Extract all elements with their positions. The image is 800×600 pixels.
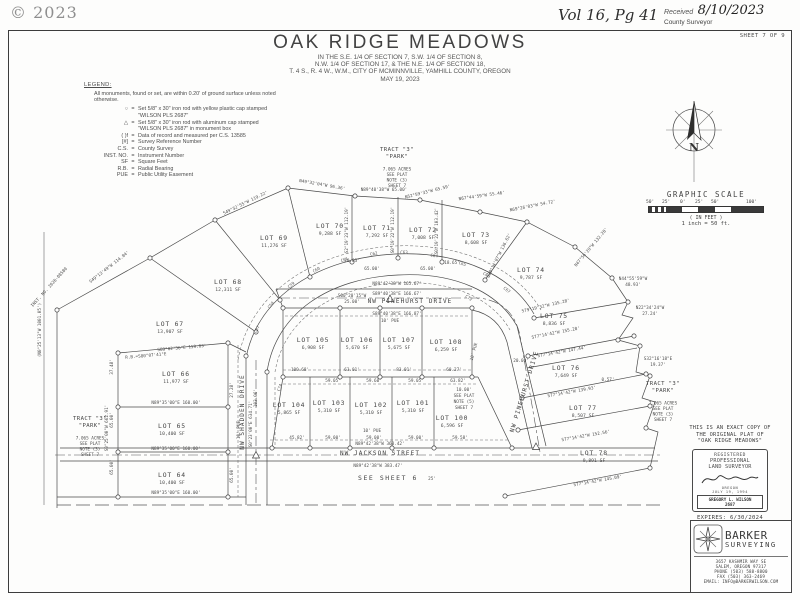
cert-line1: THIS IS AN EXACT COPY OF xyxy=(664,425,796,432)
lot-area-label: 5,675 SF xyxy=(388,345,411,351)
bearing-distance-label: 59.00' xyxy=(366,435,382,441)
tract-label: SEE PLAT xyxy=(387,172,408,178)
bearing-distance-label: 63.01' xyxy=(344,367,360,373)
bearing-distance-label: 18.65' xyxy=(444,260,460,266)
lot-number-label: LOT 70 xyxy=(316,222,344,230)
bearing-distance-label: 100.68' xyxy=(291,367,309,373)
lot-number-label: LOT 65 xyxy=(158,422,186,430)
scale-bar xyxy=(648,206,764,213)
curve-number-label: C72 xyxy=(464,294,473,303)
bearing-distance-label: S89°40'38"E 166.87' xyxy=(372,311,421,317)
bearing-distance-label: S77°14'42"W 155.28' xyxy=(531,325,580,340)
bearing-distance-label: S32°16'18"E xyxy=(644,356,673,362)
lot-area-label: 9,787 SF xyxy=(520,275,543,281)
bearing-distance-label: 25.00' xyxy=(344,299,360,305)
bearing-distance-label: S89°40'38"E 166.67' xyxy=(372,291,421,297)
bearing-distance-label: 65.00' xyxy=(420,266,436,272)
bearing-distance-label: SEE PLAT xyxy=(454,393,475,399)
lot-area-label: 10,400 SF xyxy=(159,480,185,486)
lot-number-label: LOT 69 xyxy=(260,234,288,242)
lot-area-label: 6,259 SF xyxy=(435,347,458,353)
lot-number-label: LOT 108 xyxy=(430,338,463,346)
lot-number-label: LOT 77 xyxy=(569,404,597,412)
lot-area-label: 12,311 SF xyxy=(215,287,241,293)
firm-compass-logo xyxy=(693,524,723,554)
lot-number-label: LOT 68 xyxy=(214,278,242,286)
cert-line3: "OAK RIDGE MEADOWS" xyxy=(664,438,796,445)
curve-number-label: C67 xyxy=(502,286,511,295)
bearing-distance-label: 45.82' xyxy=(289,435,305,441)
lot-area-label: 5,310 SF xyxy=(318,408,341,414)
lot-area-label: 7,008 SF xyxy=(412,235,435,241)
lot-number-label: LOT 106 xyxy=(341,336,374,344)
tract-label: "PARK" xyxy=(79,423,102,429)
bearing-distance-label: N89°42'38"W 165.67' xyxy=(372,281,421,287)
bearing-distance-label: 10' PUE xyxy=(381,318,400,324)
firm-header: BARKER SURVEYING xyxy=(691,521,791,555)
lot-number-label: LOT 72 xyxy=(409,226,437,234)
certification-block: THIS IS AN EXACT COPY OF THE ORIGINAL PL… xyxy=(664,425,796,521)
tract-label: TRACT "3" xyxy=(380,147,414,153)
lot-area-label: 6,596 SF xyxy=(441,423,464,429)
graphic-scale: GRAPHIC SCALE 50' 25' 0' 25' 50' 100' ( … xyxy=(646,190,766,227)
plat-sheet: © 2023 Vol 16, Pg 41 Received 8/10/2023 … xyxy=(0,0,800,600)
curve-number-label: C58 xyxy=(267,300,276,309)
bearing-distance-label: 10' PUE xyxy=(236,421,242,440)
scale-tick: 100' xyxy=(746,200,757,205)
bearing-distance-label: 59.60' xyxy=(366,378,382,384)
curve-number-label: C64 xyxy=(430,253,439,259)
bearing-distance-label: 59.58' xyxy=(452,435,468,441)
bearing-distance-label: N89°35'00"E 160.00' xyxy=(151,490,200,496)
bearing-distance-label: R.B.=S80°07'41"E xyxy=(125,351,167,361)
curve-number-label: C57 xyxy=(253,324,261,333)
firm-name: BARKER xyxy=(725,531,777,541)
tract-label: NOTE (3) xyxy=(80,447,101,453)
scale-tick: 25' xyxy=(662,200,670,205)
tract-label: NOTE (3) xyxy=(653,412,674,418)
bearing-distance-label: 103.06' xyxy=(253,389,259,407)
bearing-distance-label: 37.48' xyxy=(109,359,115,375)
curve-number-label: C74 xyxy=(276,383,283,392)
north-arrow: N xyxy=(666,101,722,182)
bearing-distance-label: N22°34'24"W xyxy=(636,305,665,311)
stamp-date: JULY 19, 1994 xyxy=(695,490,765,494)
bearing-distance-label: S49°13'49"W 114.84' xyxy=(88,250,130,285)
lot-number-label: LOT 78 xyxy=(580,449,608,457)
bearing-distance-label: S77°14'42"W 147.44' xyxy=(537,345,586,359)
tract-label: 7.065 ACRES xyxy=(383,167,412,173)
bearing-distance-label: 10' PUE xyxy=(363,428,382,434)
street-name-label: NW JACKSON STREET xyxy=(340,450,420,457)
scale-tick-labels: 50' 25' 0' 25' 50' 100' xyxy=(646,199,766,206)
graphic-scale-title: GRAPHIC SCALE xyxy=(646,190,766,199)
bearing-distance-label: N89°35'00"E 160.00' xyxy=(151,446,200,452)
bearing-distance-label: N69°26'03"W 54.72' xyxy=(509,199,556,214)
lot-area-label: 11,977 SF xyxy=(163,379,189,385)
surveyor-stamp: REGISTERED PROFESSIONAL LAND SURVEYOR OR… xyxy=(692,449,768,512)
bearing-distance-label: N67°44'59"W 55.46' xyxy=(458,190,505,202)
bearing-distance-label: 63.82' xyxy=(450,378,466,384)
bearing-distance-label: 83.01' xyxy=(396,367,412,373)
bearing-distance-label: 20.00' xyxy=(513,358,529,364)
bearing-distance-label: 25' xyxy=(428,476,436,482)
lot-number-label: LOT 67 xyxy=(156,320,184,328)
tract-label: SHEET 7 xyxy=(654,417,673,423)
scale-ratio-note: 1 inch = 50 ft. xyxy=(646,221,766,227)
north-letter: N xyxy=(689,141,699,154)
lot-number-label: LOT 73 xyxy=(462,231,490,239)
bearing-distance-label: 59.00' xyxy=(325,435,341,441)
bearing-distance-label: 65.00' xyxy=(109,459,115,475)
lot-number-label: LOT 102 xyxy=(355,401,388,409)
tract-label: 7.065 ACRES xyxy=(76,436,105,442)
bearing-distance-label: N89°42'38"W 360.42' xyxy=(355,441,404,447)
curve-number-label: C63 xyxy=(400,250,408,255)
lot-area-label: 5,865 SF xyxy=(278,410,301,416)
tract-label: SEE PLAT xyxy=(80,441,101,447)
bearing-distance-label: 10.00' xyxy=(456,387,472,393)
bearing-distance-label: 59.05' xyxy=(408,378,424,384)
bearing-distance-label: S30°14'07"W 136.62' xyxy=(485,232,513,279)
lot-number-label: LOT 100 xyxy=(436,414,469,422)
bearing-distance-label: S49°32'55"W 119.22' xyxy=(222,190,269,217)
bearing-distance-label: 10' PUE xyxy=(469,342,480,361)
firm-block: BARKER SURVEYING 3657 KASHMIR WAY SE SAL… xyxy=(690,520,792,593)
bearing-distance-label: INST. NO. 2020-08580 xyxy=(30,266,69,309)
bearing-distance-label: 65.00' xyxy=(229,467,235,483)
bearing-distance-label: 27.28' xyxy=(229,382,235,398)
bearing-distance-label: 59.05' xyxy=(325,378,341,384)
lot-number-label: LOT 74 xyxy=(517,266,545,274)
lot-area-label: 5,670 SF xyxy=(346,345,369,351)
lot-number-label: LOT 71 xyxy=(363,224,391,232)
bearing-distance-label: S0°19'22"W 112.19' xyxy=(390,207,396,254)
tract-label: "PARK" xyxy=(386,154,409,160)
lot-area-label: 7,649 SF xyxy=(555,373,578,379)
bearing-distance-label: N89°42'38"W 383.47' xyxy=(353,463,402,469)
lot-number-label: LOT 66 xyxy=(162,370,190,378)
lot-number-label: LOT 101 xyxy=(397,399,430,407)
bearing-distance-label: 48.93' xyxy=(625,282,641,288)
signature-stroke xyxy=(702,475,758,482)
tract-label: 7.065 ACRES xyxy=(649,401,678,407)
lot-area-label: 11,276 SF xyxy=(261,243,287,249)
lot-number-label: LOT 75 xyxy=(540,312,568,320)
lot-area-label: 5,310 SF xyxy=(360,410,383,416)
tract-label: TRACT "3" xyxy=(646,381,680,387)
street-name-label: NW PINEHURST DRIVE xyxy=(368,298,453,305)
bearing-distance-label: 65.00' xyxy=(109,412,115,428)
bearing-distance-label: S2°19'23"W 112.19' xyxy=(344,207,350,254)
lot-area-label: 13,907 SF xyxy=(157,329,183,335)
lot-area-label: 9,891 SF xyxy=(583,458,606,464)
firm-type: SURVEYING xyxy=(725,541,777,548)
bearing-distance-label: S00°20'15"W xyxy=(338,293,367,299)
bearing-distance-label: 19.37' xyxy=(650,362,666,368)
tract-label: SEE PLAT xyxy=(653,406,674,412)
bearing-distance-label: 59.00' xyxy=(408,435,424,441)
see-sheet-note: SEE SHEET 6 xyxy=(358,474,418,482)
bearing-distance-label: 60.27' xyxy=(446,367,462,373)
firm-address: 3657 KASHMIR WAY SE SALEM, OREGON 97317 … xyxy=(694,556,788,584)
scale-tick: 25' xyxy=(695,200,703,205)
curve-number-label: C65 xyxy=(458,260,467,267)
lot-area-label: 10,400 SF xyxy=(159,431,185,437)
bearing-distance-label: 27.24' xyxy=(642,311,658,317)
scale-tick: 50' xyxy=(711,200,719,205)
stamp-name-box: GREGORY L. WILSON 2687 xyxy=(697,495,763,509)
bearing-distance-label: N89°35'00"E 160.00' xyxy=(151,400,200,406)
firm-email: EMAIL: INFO@BARKERWILSON.COM xyxy=(694,579,788,584)
lot-area-label: 9,288 SF xyxy=(319,231,342,237)
bearing-distance-label: S77°14'42"W 152.56' xyxy=(561,429,610,443)
bearing-distance-label: S77°14'42"W 145.09' xyxy=(573,474,622,488)
tract-label: TRACT "3" xyxy=(73,416,107,422)
scale-tick: 0' xyxy=(680,200,686,205)
scale-tick: 50' xyxy=(646,200,654,205)
map-labels: LOT 6410,400 SFLOT 6510,400 SFLOT 6611,9… xyxy=(30,147,680,496)
lot-area-label: 8,507 SF xyxy=(572,413,595,419)
lot-area-label: 8,608 SF xyxy=(465,240,488,246)
bearing-distance-label: S0°19'22"W 103.42' xyxy=(434,208,440,255)
lot-number-label: LOT 104 xyxy=(273,401,306,409)
tract-label: NOTE (3) xyxy=(387,178,408,184)
lot-area-label: 7,292 SF xyxy=(366,233,389,239)
bearing-distance-label: 65.00' xyxy=(364,266,380,272)
stamp-land-surveyor: LAND SURVEYOR xyxy=(695,464,765,470)
lot-number-label: LOT 107 xyxy=(383,336,416,344)
lot-area-label: 5,310 SF xyxy=(402,408,425,414)
bearing-distance-label: (N0°25'13"W 1001.05') xyxy=(37,303,43,357)
lot-number-label: LOT 105 xyxy=(297,336,330,344)
lot-area-label: 8,836 SF xyxy=(543,321,566,327)
cert-line2: THE ORIGINAL PLAT OF xyxy=(664,432,796,439)
stamp-number: 2687 xyxy=(698,502,762,507)
tract-label: "PARK" xyxy=(652,388,675,394)
bearing-distance-label: 0.57' xyxy=(602,377,615,383)
tract-label: SHEET 7 xyxy=(81,452,100,458)
bearing-distance-label: N89°40'38"W 65.00' xyxy=(361,187,408,193)
bearing-distance-label: N47°56'20"W 132.28' xyxy=(573,227,609,269)
lot-number-label: LOT 103 xyxy=(313,399,346,407)
lot-number-label: LOT 64 xyxy=(158,471,186,479)
lot-area-label: 6,908 SF xyxy=(302,345,325,351)
bearing-distance-label: SHEET 7 xyxy=(455,405,474,411)
lot-number-label: LOT 76 xyxy=(552,364,580,372)
bearing-distance-label: N52°59'33"W 65.59' xyxy=(404,183,451,200)
bearing-distance-label: N44°55'59"W xyxy=(619,276,648,282)
bearing-distance-label: NOTE (5) xyxy=(454,399,475,405)
surveyor-signature xyxy=(695,471,765,485)
